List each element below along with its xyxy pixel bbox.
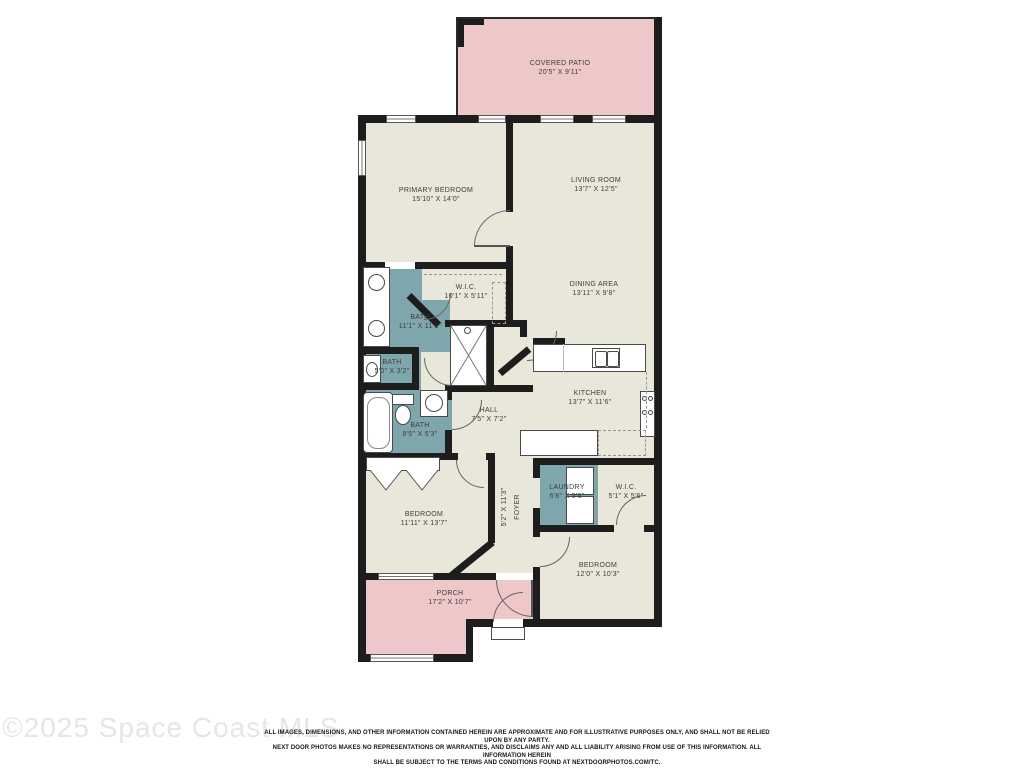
sink-basin	[595, 351, 607, 367]
toilet-tank	[392, 394, 414, 405]
room-label-foyer-name: FOYER	[513, 457, 525, 557]
room-name: BEDROOM	[364, 510, 484, 519]
porch-floor-lower	[366, 619, 466, 654]
window	[370, 654, 434, 662]
room-dims: 5'1" X 5'6"	[576, 492, 676, 501]
room-dims: 5'2" X 11'3"	[500, 457, 509, 557]
window	[478, 115, 506, 123]
patio-edge	[456, 17, 656, 19]
sink-icon	[368, 274, 385, 291]
room-label-primary-bedroom: PRIMARY BEDROOM 15'10" X 14'0"	[376, 186, 496, 204]
wall	[487, 327, 494, 392]
shower-fixture	[450, 325, 487, 386]
sink-icon	[425, 394, 443, 412]
burner-icon	[648, 410, 653, 415]
wall	[506, 246, 513, 327]
closet-track	[366, 457, 440, 471]
room-label-porch: PORCH 17'2" X 10'7"	[390, 589, 510, 607]
door-step	[491, 627, 525, 640]
disclaimer-line: NEXT DOOR PHOTOS MAKES NO REPRESENTATION…	[256, 745, 778, 760]
room-label-covered-patio: COVERED PATIO 20'5" X 9'11"	[500, 59, 620, 77]
room-dims: 7'5" X 7'2"	[449, 415, 529, 424]
room-dims: 5'0" X 3'2"	[352, 367, 432, 376]
room-dims: 15'10" X 14'0"	[376, 195, 496, 204]
door-leaf	[531, 580, 533, 617]
window	[358, 140, 366, 176]
wall	[523, 619, 662, 627]
room-name: BATH	[380, 421, 460, 430]
room-dims: 13'7" X 12'5"	[536, 185, 656, 194]
room-dims: 11'1" X 11'1"	[380, 322, 460, 331]
wall	[533, 508, 540, 537]
wall	[358, 347, 416, 354]
disclaimer: ALL IMAGES, DIMENSIONS, AND OTHER INFORM…	[256, 730, 778, 768]
wall	[488, 453, 495, 543]
room-name: PRIMARY BEDROOM	[376, 186, 496, 195]
room-name: COVERED PATIO	[500, 59, 620, 68]
room-name: W.I.C.	[576, 483, 676, 492]
room-label-dining-area: DINING AREA 13'11" X 9'8"	[534, 280, 654, 298]
room-name: LIVING ROOM	[536, 176, 656, 185]
room-name: DINING AREA	[534, 280, 654, 289]
floor-plan-page: COVERED PATIO 20'5" X 9'11" PRIMARY BEDR…	[0, 0, 1024, 768]
room-label-foyer-dims: 5'2" X 11'3"	[500, 457, 512, 557]
kitchen-peninsula-counter	[520, 430, 598, 456]
room-label-bedroom-3: BEDROOM 12'0" X 10'3"	[538, 561, 658, 579]
patio-edge	[456, 17, 458, 115]
disclaimer-line: ALL IMAGES, DIMENSIONS, AND OTHER INFORM…	[256, 730, 778, 745]
room-label-hall: HALL 7'5" X 7'2"	[449, 406, 529, 424]
bifold-doors-icon	[368, 470, 440, 492]
wall	[358, 383, 414, 390]
room-name: W.I.C.	[426, 283, 506, 292]
disclaimer-line: SHALL BE SUBJECT TO THE TERMS AND CONDIT…	[256, 760, 778, 768]
room-dims: 12'0" X 10'3"	[538, 570, 658, 579]
room-label-bath-wc: BATH 5'0" X 3'2"	[352, 358, 432, 376]
door-leaf	[474, 245, 510, 247]
window	[386, 115, 416, 123]
kitchen-counter	[533, 344, 646, 372]
wall	[644, 525, 662, 532]
wall	[415, 262, 513, 269]
sink-basin	[607, 351, 619, 367]
room-label-bath-primary: BATH 11'1" X 11'1"	[380, 313, 460, 331]
wall	[533, 458, 662, 465]
room-label-bedroom-2: BEDROOM 11'11" X 13'7"	[364, 510, 484, 528]
window	[378, 573, 434, 580]
room-dims: 20'5" X 9'11"	[500, 68, 620, 77]
room-dims: 11'11" X 13'7"	[364, 519, 484, 528]
upper-cabinet-dashed	[598, 430, 646, 456]
room-dims: 13'11" X 9'8"	[534, 289, 654, 298]
window	[592, 115, 626, 123]
room-label-bath-hall: BATH 8'5" X 5'3"	[380, 421, 460, 439]
room-name: FOYER	[513, 457, 522, 557]
wall	[506, 122, 513, 212]
room-name: BATH	[380, 313, 460, 322]
front-door-opening	[496, 573, 533, 580]
room-label-wic-primary: W.I.C. 10'1" X 5'11"	[426, 283, 506, 301]
window	[540, 115, 574, 123]
room-label-kitchen: KITCHEN 13'7" X 11'6"	[530, 389, 650, 407]
closet-rod-dashed	[424, 274, 502, 276]
room-name: HALL	[449, 406, 529, 415]
wall	[533, 525, 614, 532]
room-name: BATH	[352, 358, 432, 367]
room-dims: 10'1" X 5'11"	[426, 292, 506, 301]
wall	[520, 327, 527, 337]
room-dims: 8'5" X 5'3"	[380, 430, 460, 439]
room-dims: 17'2" X 10'7"	[390, 598, 510, 607]
room-name: BEDROOM	[538, 561, 658, 570]
room-label-living-room: LIVING ROOM 13'7" X 12'5"	[536, 176, 656, 194]
room-dims: 13'7" X 11'6"	[530, 398, 650, 407]
room-name: PORCH	[390, 589, 510, 598]
counter-divider	[563, 344, 564, 372]
shower-head-icon	[464, 327, 471, 334]
room-label-wic-2: W.I.C. 5'1" X 5'6"	[576, 483, 676, 501]
room-name: KITCHEN	[530, 389, 650, 398]
wall	[654, 17, 662, 627]
